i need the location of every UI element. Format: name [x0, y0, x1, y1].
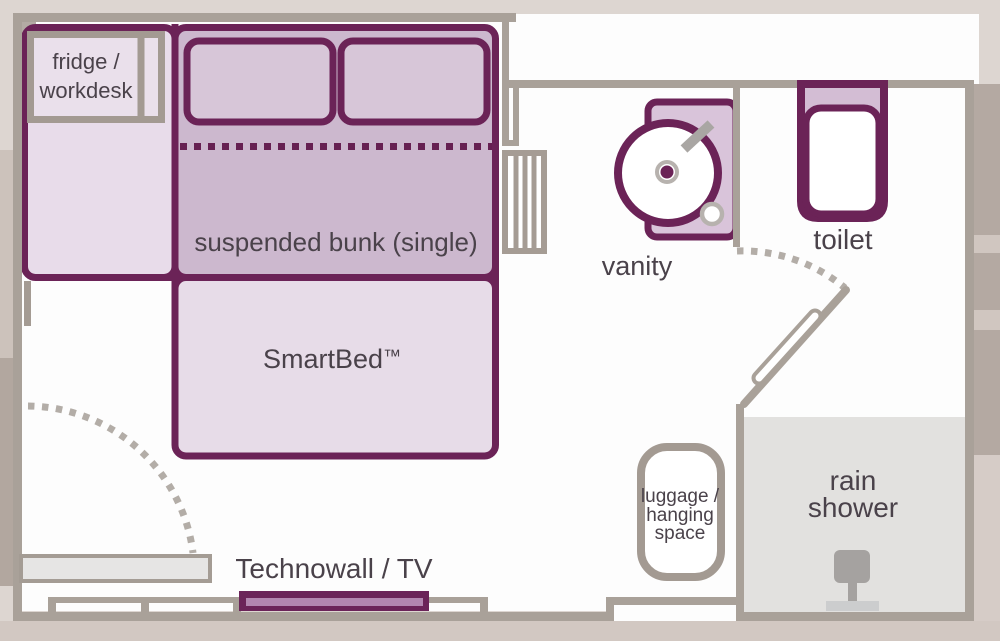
svg-text:SmartBed™: SmartBed™ — [263, 344, 401, 374]
svg-text:Technowall / TV: Technowall / TV — [235, 553, 432, 584]
svg-text:suspended bunk (single): suspended bunk (single) — [194, 227, 477, 257]
svg-text:luggage /: luggage / — [641, 486, 720, 507]
svg-text:vanity: vanity — [602, 251, 673, 281]
svg-text:space: space — [655, 523, 706, 544]
svg-text:shower: shower — [808, 492, 898, 523]
svg-text:fridge /: fridge / — [52, 49, 120, 74]
svg-text:workdesk: workdesk — [39, 78, 134, 103]
svg-text:toilet: toilet — [813, 224, 872, 255]
